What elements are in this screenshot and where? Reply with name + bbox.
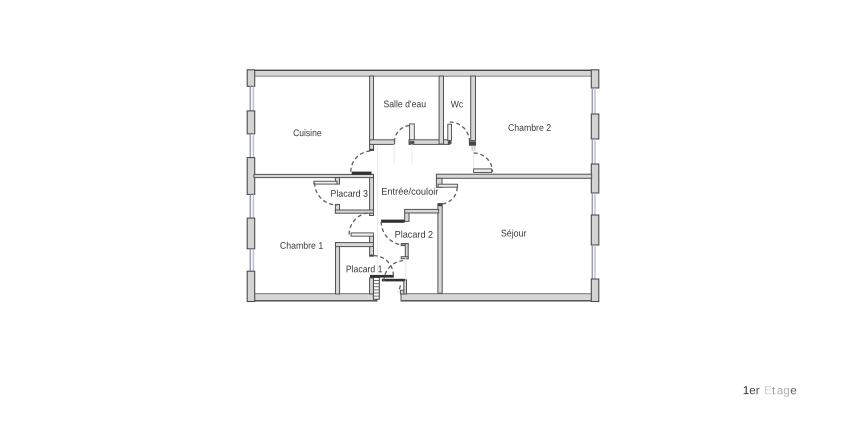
- svg-text:Chambre 2: Chambre 2: [508, 123, 551, 134]
- svg-text:Placard 2: Placard 2: [395, 230, 434, 241]
- svg-text:1erEtage: 1erEtage: [743, 384, 797, 397]
- svg-text:Entrée/couloir: Entrée/couloir: [381, 187, 439, 198]
- svg-text:Salle d'eau: Salle d'eau: [383, 99, 426, 110]
- svg-text:Cuisine: Cuisine: [293, 128, 322, 139]
- svg-text:Chambre 1: Chambre 1: [280, 241, 323, 252]
- svg-text:Séjour: Séjour: [501, 228, 527, 239]
- svg-text:Placard 1: Placard 1: [346, 264, 383, 275]
- svg-text:Wc: Wc: [451, 99, 464, 110]
- svg-text:Placard 3: Placard 3: [330, 189, 368, 200]
